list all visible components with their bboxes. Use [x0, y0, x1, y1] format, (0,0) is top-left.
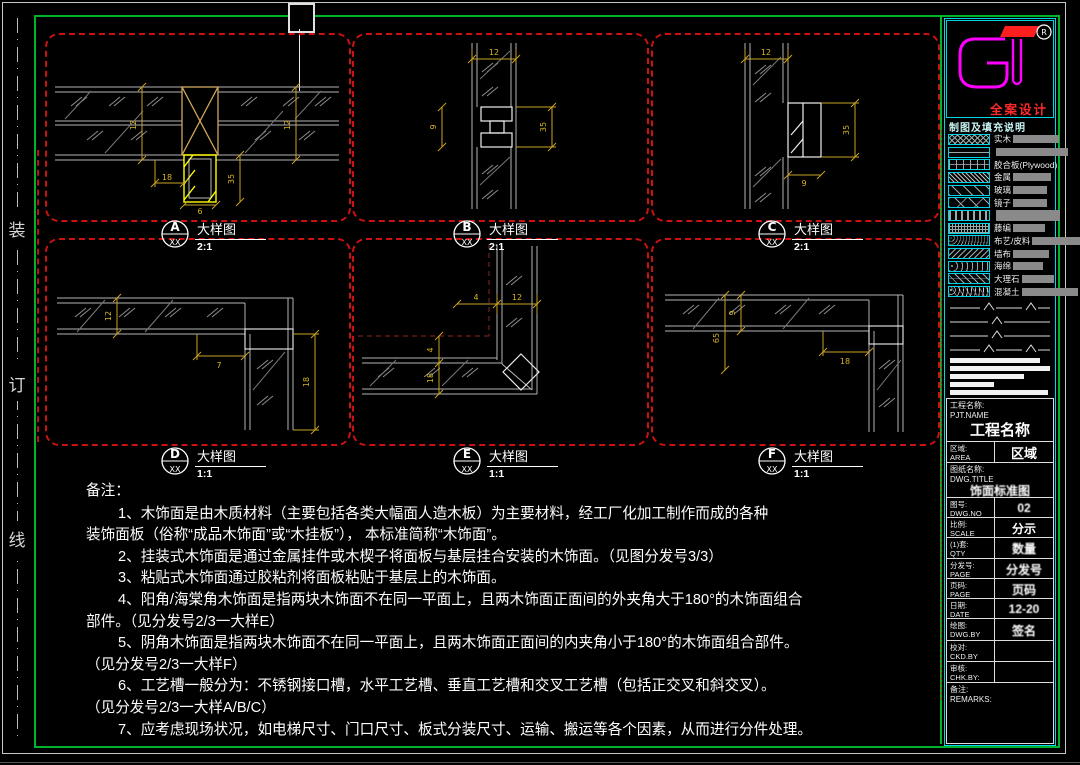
hatch-swatch-plywood [948, 159, 990, 170]
redacted-label [1013, 135, 1059, 143]
svg-text:4: 4 [426, 347, 435, 352]
legend-item [948, 146, 1052, 159]
svg-text:12: 12 [283, 120, 292, 130]
note-line: （见分发号2/3一大样F） [86, 655, 936, 677]
legend-item: 墙布 [948, 247, 1052, 260]
approved-by-value [995, 662, 1053, 683]
date-value: 12-20 [995, 599, 1053, 619]
corner-spline-diamond [503, 354, 539, 390]
redacted-label [1022, 288, 1078, 296]
notes-block: 备注： 1、木饰面是由木质材料（主要包括各类大幅面人造木板）为主要材料，经工厂化… [86, 481, 936, 741]
svg-text:18: 18 [302, 377, 311, 387]
red-dash-column-panel [941, 130, 942, 700]
svg-text:7: 7 [216, 361, 221, 370]
legend-item: 胶合板(Plywood) [948, 158, 1052, 171]
svg-text:35: 35 [842, 125, 851, 135]
detail-A-drawing: 12 12 18 6 35 [47, 35, 345, 216]
dwg-no-value: 02 [995, 498, 1053, 518]
legend-item: 混凝土 [948, 285, 1052, 298]
hatch-swatch-metal [948, 172, 990, 183]
svg-text:12: 12 [512, 293, 522, 302]
legend-item: 海绵 [948, 260, 1052, 273]
qty-row: (1)套:QTY 数量 [946, 537, 1054, 560]
svg-text:12: 12 [761, 48, 771, 57]
svg-text:F: F [768, 447, 776, 461]
svg-text:9: 9 [429, 124, 438, 129]
legend-item: 布艺/皮料 [948, 235, 1052, 248]
redacted-label [1013, 262, 1043, 270]
hatch-swatch-rattan [948, 223, 990, 234]
logo-red-accent [1000, 26, 1039, 37]
svg-text:XX: XX [462, 465, 473, 474]
qty-value: 数量 [995, 538, 1053, 559]
gt-logo: R [947, 21, 1053, 99]
detail-tile-A: 12 12 18 6 35 [45, 33, 351, 222]
note-line: 4、阳角/海棠角木饰面是指两块木饰面不在同一平面上，且两木饰面正面间的外夹角大于… [86, 590, 936, 612]
detail-label-A: AXX 大样图2:1 [160, 219, 266, 251]
page-value: 页码 [995, 579, 1053, 599]
revision-marks [948, 298, 1052, 354]
redacted-text-bar [950, 374, 1024, 379]
redacted-label [996, 148, 1068, 156]
area-value: 区域 [995, 442, 1053, 463]
redacted-label [1022, 275, 1054, 283]
date-row: 日期:DATE 12-20 [946, 598, 1054, 620]
checked-by-value [995, 641, 1053, 662]
note-line: 装饰面板（俗称“成品木饰面”或“木挂板”）， 本标准简称“木饰面”。 [86, 525, 936, 547]
detail-B-drawing: 12 9 35 [354, 35, 643, 216]
hatch-swatch-mirror [948, 197, 990, 208]
project-label: 工程名称: [950, 401, 984, 410]
notes-heading: 备注： [86, 481, 936, 503]
legend-item: 实木 [948, 133, 1052, 146]
legend-item: 玻璃 [948, 184, 1052, 197]
svg-text:XX: XX [462, 238, 473, 247]
detail-tile-C: 12 35 9 [651, 33, 940, 222]
dist-no-row: 分发号:PAGE 分发号 [946, 558, 1054, 580]
bottom-edge-line [0, 762, 1080, 763]
note-line: 1、木饰面是由木质材料（主要包括各类大幅面人造木板）为主要材料，经工厂化加工制作… [86, 504, 936, 526]
dimensions [435, 294, 541, 398]
note-line: 2、挂装式木饰面是通过金属挂件或木楔子将面板与基层挂合安装的木饰面。（见图分发号… [86, 547, 936, 569]
svg-text:XX: XX [767, 465, 778, 474]
corner-step [245, 329, 293, 349]
svg-text:18: 18 [840, 357, 850, 366]
legend-item: 藤编 [948, 222, 1052, 235]
note-line: 5、阴角木饰面是指两块木饰面不在同一平面上，且两木饰面正面间的内夹角小于180°… [86, 633, 936, 655]
note-line: 6、工艺槽一般分为：不锈钢接口槽，水平工艺槽、垂直工艺槽和交叉工艺槽（包括正交叉… [86, 676, 936, 698]
legend-item: 镜子 [948, 196, 1052, 209]
detail-tile-F: 9 65 18 [651, 238, 940, 446]
svg-text:D: D [170, 447, 180, 461]
legend-item [948, 209, 1052, 222]
hatch-swatch-marble [948, 273, 990, 284]
side-block [788, 103, 821, 157]
redacted-label [996, 210, 1060, 221]
binding-char: 线 [9, 521, 26, 556]
remarks-box: 备注:REMARKS: [946, 682, 1054, 744]
detail-tile-D: 12 7 18 [45, 238, 351, 446]
svg-text:B: B [462, 220, 471, 234]
detail-F-drawing: 9 65 18 [653, 240, 934, 440]
svg-text:XX: XX [170, 238, 181, 247]
svg-text:9: 9 [801, 179, 806, 188]
red-dash-column-left [37, 150, 39, 442]
dimensions [741, 49, 859, 179]
blocking-x-box [182, 87, 218, 155]
redacted-text-bar [950, 366, 1050, 371]
section-marker-box [288, 3, 315, 33]
redacted-label [1013, 224, 1045, 232]
svg-text:XX: XX [767, 238, 778, 247]
redacted-text-bar [950, 390, 1048, 395]
svg-text:35: 35 [539, 122, 548, 132]
svg-text:12: 12 [104, 311, 113, 321]
checked-by-row: 校对:CKD.BY [946, 640, 1054, 663]
area-row: 区域:AREA 区域 [946, 441, 1054, 464]
project-name-box: 工程名称:PJT.NAME 工程名称 [946, 398, 1054, 443]
note-line: 3、粘贴式木饰面通过胶粘剂将面板粘贴于基层上的木饰面。 [86, 568, 936, 590]
legend-title: 制图及填充说明 [949, 119, 1051, 134]
svg-text:12: 12 [489, 48, 499, 57]
page-row: 页码:PAGE 页码 [946, 578, 1054, 600]
scale-row: 比例:SCALE 分示 [946, 517, 1054, 539]
detail-tile-E: 4 12 4 18 [352, 238, 649, 446]
hatch-swatch-line [948, 147, 990, 158]
redacted-label [1013, 199, 1047, 207]
hatch-swatch-glass [948, 185, 990, 196]
detail-D-drawing: 12 7 18 [47, 240, 345, 440]
dimensions [721, 291, 873, 374]
redacted-label [1013, 186, 1047, 194]
dashed-guides [358, 244, 489, 336]
svg-text:A: A [170, 220, 180, 234]
svg-text:C: C [768, 220, 777, 234]
svg-text:XX: XX [170, 465, 181, 474]
svg-text:65: 65 [712, 333, 721, 343]
dist-no-value: 分发号 [995, 559, 1053, 579]
svg-text:18: 18 [426, 373, 435, 383]
scale-value: 分示 [995, 518, 1053, 538]
legend: 实木 胶合板(Plywood) 金属 玻璃 镜子 藤编 布艺/皮料 墙布 海绵 … [948, 133, 1052, 298]
svg-text:4: 4 [473, 293, 478, 302]
brand-subtitle: 全案设计 [948, 99, 1048, 118]
binding-char: 订 [9, 366, 26, 401]
legend-item: 金属 [948, 171, 1052, 184]
detail-label-C: CXX 大样图2:1 [757, 219, 863, 251]
hatch-swatch-fabric [948, 235, 990, 246]
redacted-text-bar [950, 358, 1040, 363]
redacted-label [1032, 237, 1080, 245]
binding-char: 装 [9, 211, 26, 246]
detail-label-E: EXX 大样图1:1 [452, 446, 558, 478]
detail-tile-B: 12 9 35 [352, 33, 649, 222]
drawn-by-row: 绘图:DWG.BY 签名 [946, 618, 1054, 642]
dimensions [138, 83, 300, 209]
hatch-swatch-wallcloth [948, 248, 990, 259]
detail-E-drawing: 4 12 4 18 [354, 240, 643, 440]
svg-text:18: 18 [162, 173, 172, 182]
detail-label-D: DXX 大样图1:1 [160, 446, 266, 478]
detail-C-drawing: 12 35 9 [653, 35, 934, 216]
cad-sheet: 装 订 线 [0, 0, 1080, 765]
hatch-swatch-concrete [948, 286, 990, 297]
logo-t [1013, 39, 1021, 84]
note-line: 部件。（见分发号2/3一大样E） [86, 612, 936, 634]
hatch-swatch-sponge [948, 261, 990, 272]
hatch-swatch-wave [948, 210, 990, 221]
note-line: （见分发号2/3一大样A/B/C） [86, 698, 936, 720]
svg-text:6: 6 [197, 207, 202, 216]
drawn-by-value: 签名 [995, 619, 1053, 641]
drawing-title-box: 图纸名称:DWG.TITLE 饰面标准图 [946, 462, 1054, 499]
registered-mark: R [1041, 28, 1047, 37]
legend-item: 大理石 [948, 273, 1052, 286]
svg-text:35: 35 [227, 174, 236, 184]
svg-text:E: E [463, 447, 471, 461]
redacted-label [1013, 173, 1051, 181]
redacted-info-block [950, 358, 1052, 398]
detail-label-F: FXX 大样图1:1 [757, 446, 863, 478]
svg-text:9: 9 [728, 310, 737, 315]
hatch-swatch-wood [948, 134, 990, 145]
note-line: 7、应考虑现场状况，如电梯尺寸、门口尺寸、板式分装尺寸、运输、搬运等各个因素，从… [86, 720, 936, 742]
detail-label-B: BXX 大样图2:1 [452, 219, 558, 251]
svg-text:12: 12 [129, 120, 138, 130]
logo-g [960, 39, 1007, 87]
redacted-label [1013, 250, 1049, 258]
connector-profile [481, 107, 512, 147]
approved-by-row: 审核:CHK.BY: [946, 661, 1054, 684]
project-value: 工程名称 [947, 419, 1053, 440]
redacted-text-bar [950, 382, 994, 387]
dwg-no-row: 图号:DWG.NO 02 [946, 497, 1054, 519]
